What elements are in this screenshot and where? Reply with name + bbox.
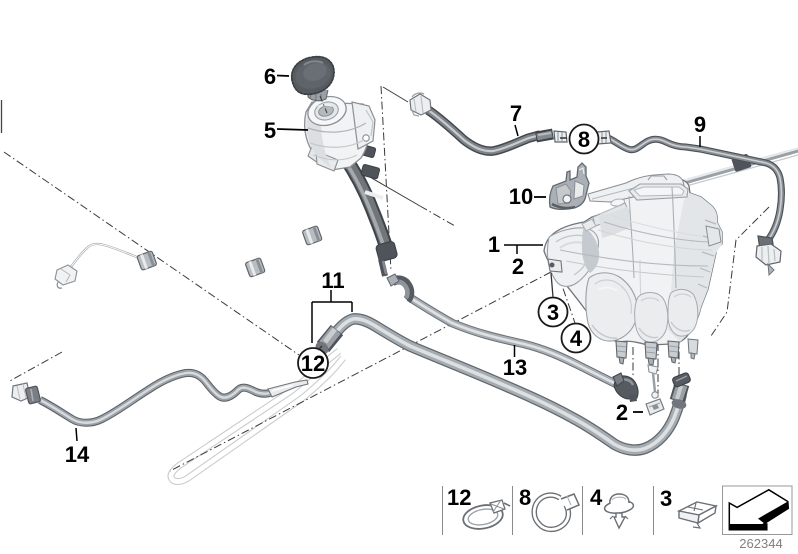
svg-text:12: 12 [301, 351, 325, 376]
svg-text:7: 7 [510, 101, 522, 126]
svg-text:1: 1 [488, 232, 500, 257]
svg-text:4: 4 [570, 326, 583, 351]
svg-text:3: 3 [547, 300, 559, 325]
svg-text:2: 2 [512, 254, 524, 279]
svg-text:8: 8 [578, 127, 590, 152]
svg-text:14: 14 [65, 442, 90, 467]
svg-text:8: 8 [519, 485, 531, 510]
svg-text:3: 3 [660, 486, 672, 511]
svg-text:9: 9 [694, 112, 706, 137]
svg-text:13: 13 [503, 355, 527, 380]
svg-text:4: 4 [590, 485, 603, 510]
svg-text:12: 12 [447, 485, 471, 510]
svg-text:2: 2 [616, 400, 628, 425]
svg-text:6: 6 [264, 64, 276, 89]
svg-text:5: 5 [264, 118, 276, 143]
svg-text:11: 11 [321, 268, 344, 293]
svg-text:10: 10 [509, 184, 533, 209]
svg-text:262344: 262344 [739, 536, 782, 551]
